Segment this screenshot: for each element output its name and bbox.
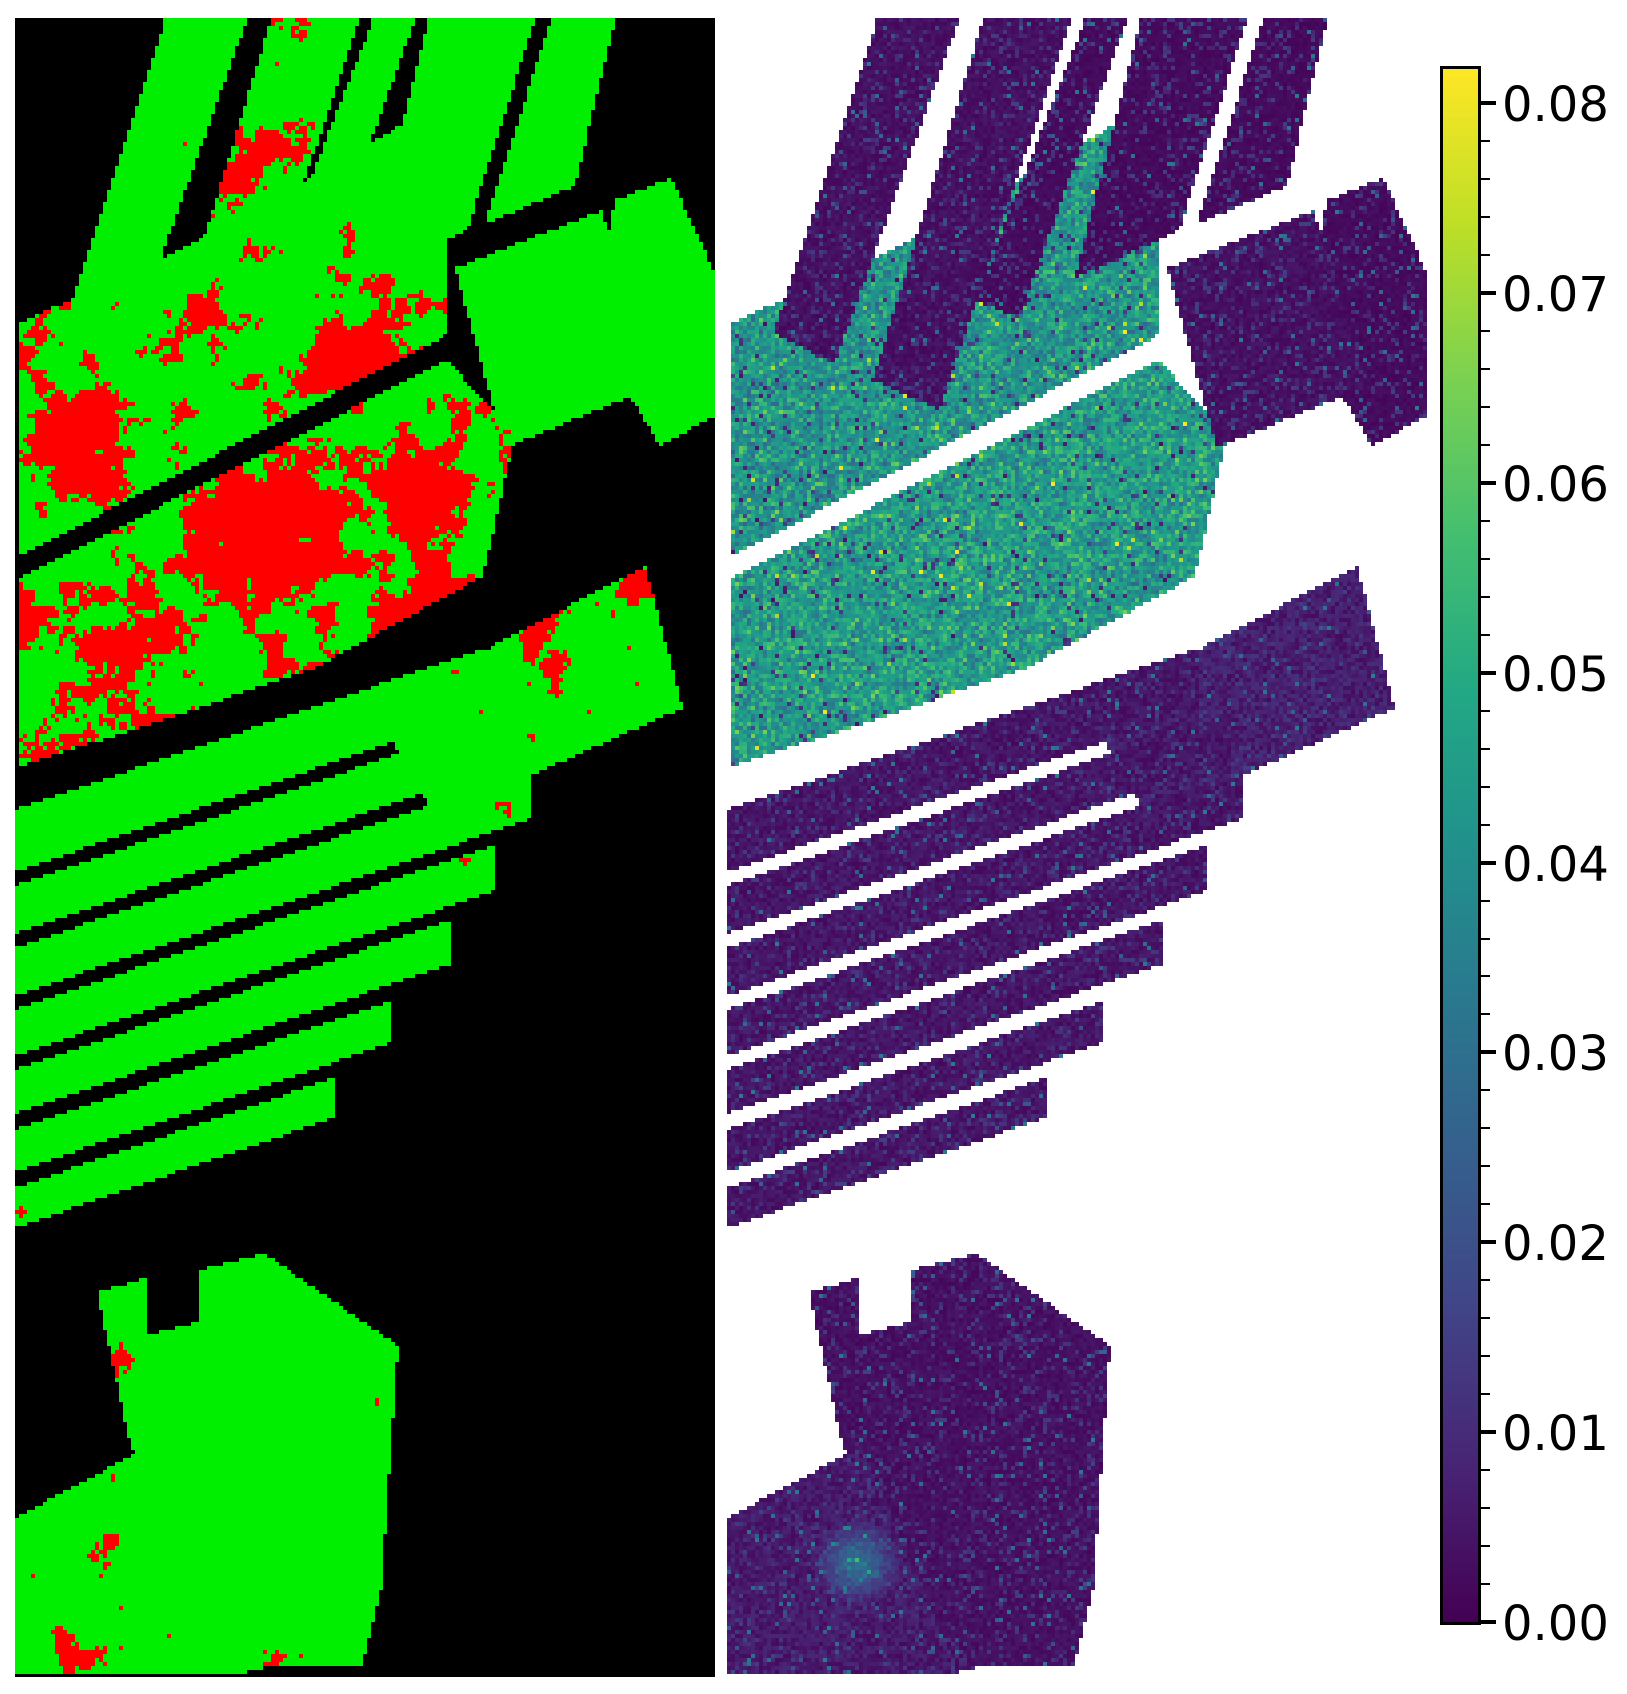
colorbar-tick-label: 0.06 <box>1502 461 1609 509</box>
colorbar-minor-tick <box>1481 824 1490 826</box>
colorbar <box>1440 66 1481 1625</box>
colorbar-minor-tick <box>1481 1545 1490 1547</box>
colorbar-major-tick <box>1481 1620 1496 1624</box>
colorbar-minor-tick <box>1481 558 1490 560</box>
colorbar-tick-label: 0.03 <box>1502 1030 1609 1078</box>
colorbar-tick-label: 0.07 <box>1502 271 1609 319</box>
colorbar-major-tick <box>1481 1050 1496 1054</box>
colorbar-minor-tick <box>1481 1013 1490 1015</box>
colorbar-major-tick <box>1481 861 1496 865</box>
colorbar-major-tick <box>1481 291 1496 295</box>
colorbar-minor-tick <box>1481 1507 1490 1509</box>
colorbar-minor-tick <box>1481 1127 1490 1129</box>
colorbar-minor-tick <box>1481 330 1490 332</box>
colorbar-minor-tick <box>1481 900 1490 902</box>
colorbar-tick-label: 0.04 <box>1502 841 1609 889</box>
colorbar-minor-tick <box>1481 938 1490 940</box>
colorbar-tick-label: 0.08 <box>1502 81 1609 129</box>
colorbar-minor-tick <box>1481 178 1490 180</box>
colorbar-tick-label: 0.05 <box>1502 651 1609 699</box>
colorbar-minor-tick <box>1481 1317 1490 1319</box>
colorbar-minor-tick <box>1481 1089 1490 1091</box>
colorbar-tick-label: 0.00 <box>1502 1600 1609 1648</box>
colorbar-minor-tick <box>1481 710 1490 712</box>
colorbar-minor-tick <box>1481 216 1490 218</box>
colorbar-minor-tick <box>1481 520 1490 522</box>
colorbar-minor-tick <box>1481 748 1490 750</box>
colorbar-minor-tick <box>1481 1583 1490 1585</box>
colorbar-minor-tick <box>1481 1469 1490 1471</box>
colorbar-major-tick <box>1481 1240 1496 1244</box>
colorbar-minor-tick <box>1481 1393 1490 1395</box>
colorbar-major-tick <box>1481 1430 1496 1434</box>
colorbar-major-tick <box>1481 671 1496 675</box>
colorbar-minor-tick <box>1481 444 1490 446</box>
colorbar-minor-tick <box>1481 975 1490 977</box>
left-classification-map <box>15 18 715 1677</box>
colorbar-minor-tick <box>1481 634 1490 636</box>
right-error-map <box>727 18 1427 1677</box>
colorbar-major-tick <box>1481 481 1496 485</box>
colorbar-minor-tick <box>1481 596 1490 598</box>
colorbar-gradient <box>1443 69 1478 1622</box>
colorbar-major-tick <box>1481 101 1496 105</box>
colorbar-minor-tick <box>1481 254 1490 256</box>
colorbar-tick-label: 0.01 <box>1502 1410 1609 1458</box>
colorbar-minor-tick <box>1481 1279 1490 1281</box>
colorbar-minor-tick <box>1481 786 1490 788</box>
colorbar-minor-tick <box>1481 368 1490 370</box>
colorbar-minor-tick <box>1481 1203 1490 1205</box>
figure: 0.000.010.020.030.040.050.060.070.08 <box>0 0 1627 1694</box>
colorbar-minor-tick <box>1481 1165 1490 1167</box>
colorbar-minor-tick <box>1481 1355 1490 1357</box>
colorbar-minor-tick <box>1481 406 1490 408</box>
colorbar-tick-label: 0.02 <box>1502 1220 1609 1268</box>
colorbar-minor-tick <box>1481 140 1490 142</box>
